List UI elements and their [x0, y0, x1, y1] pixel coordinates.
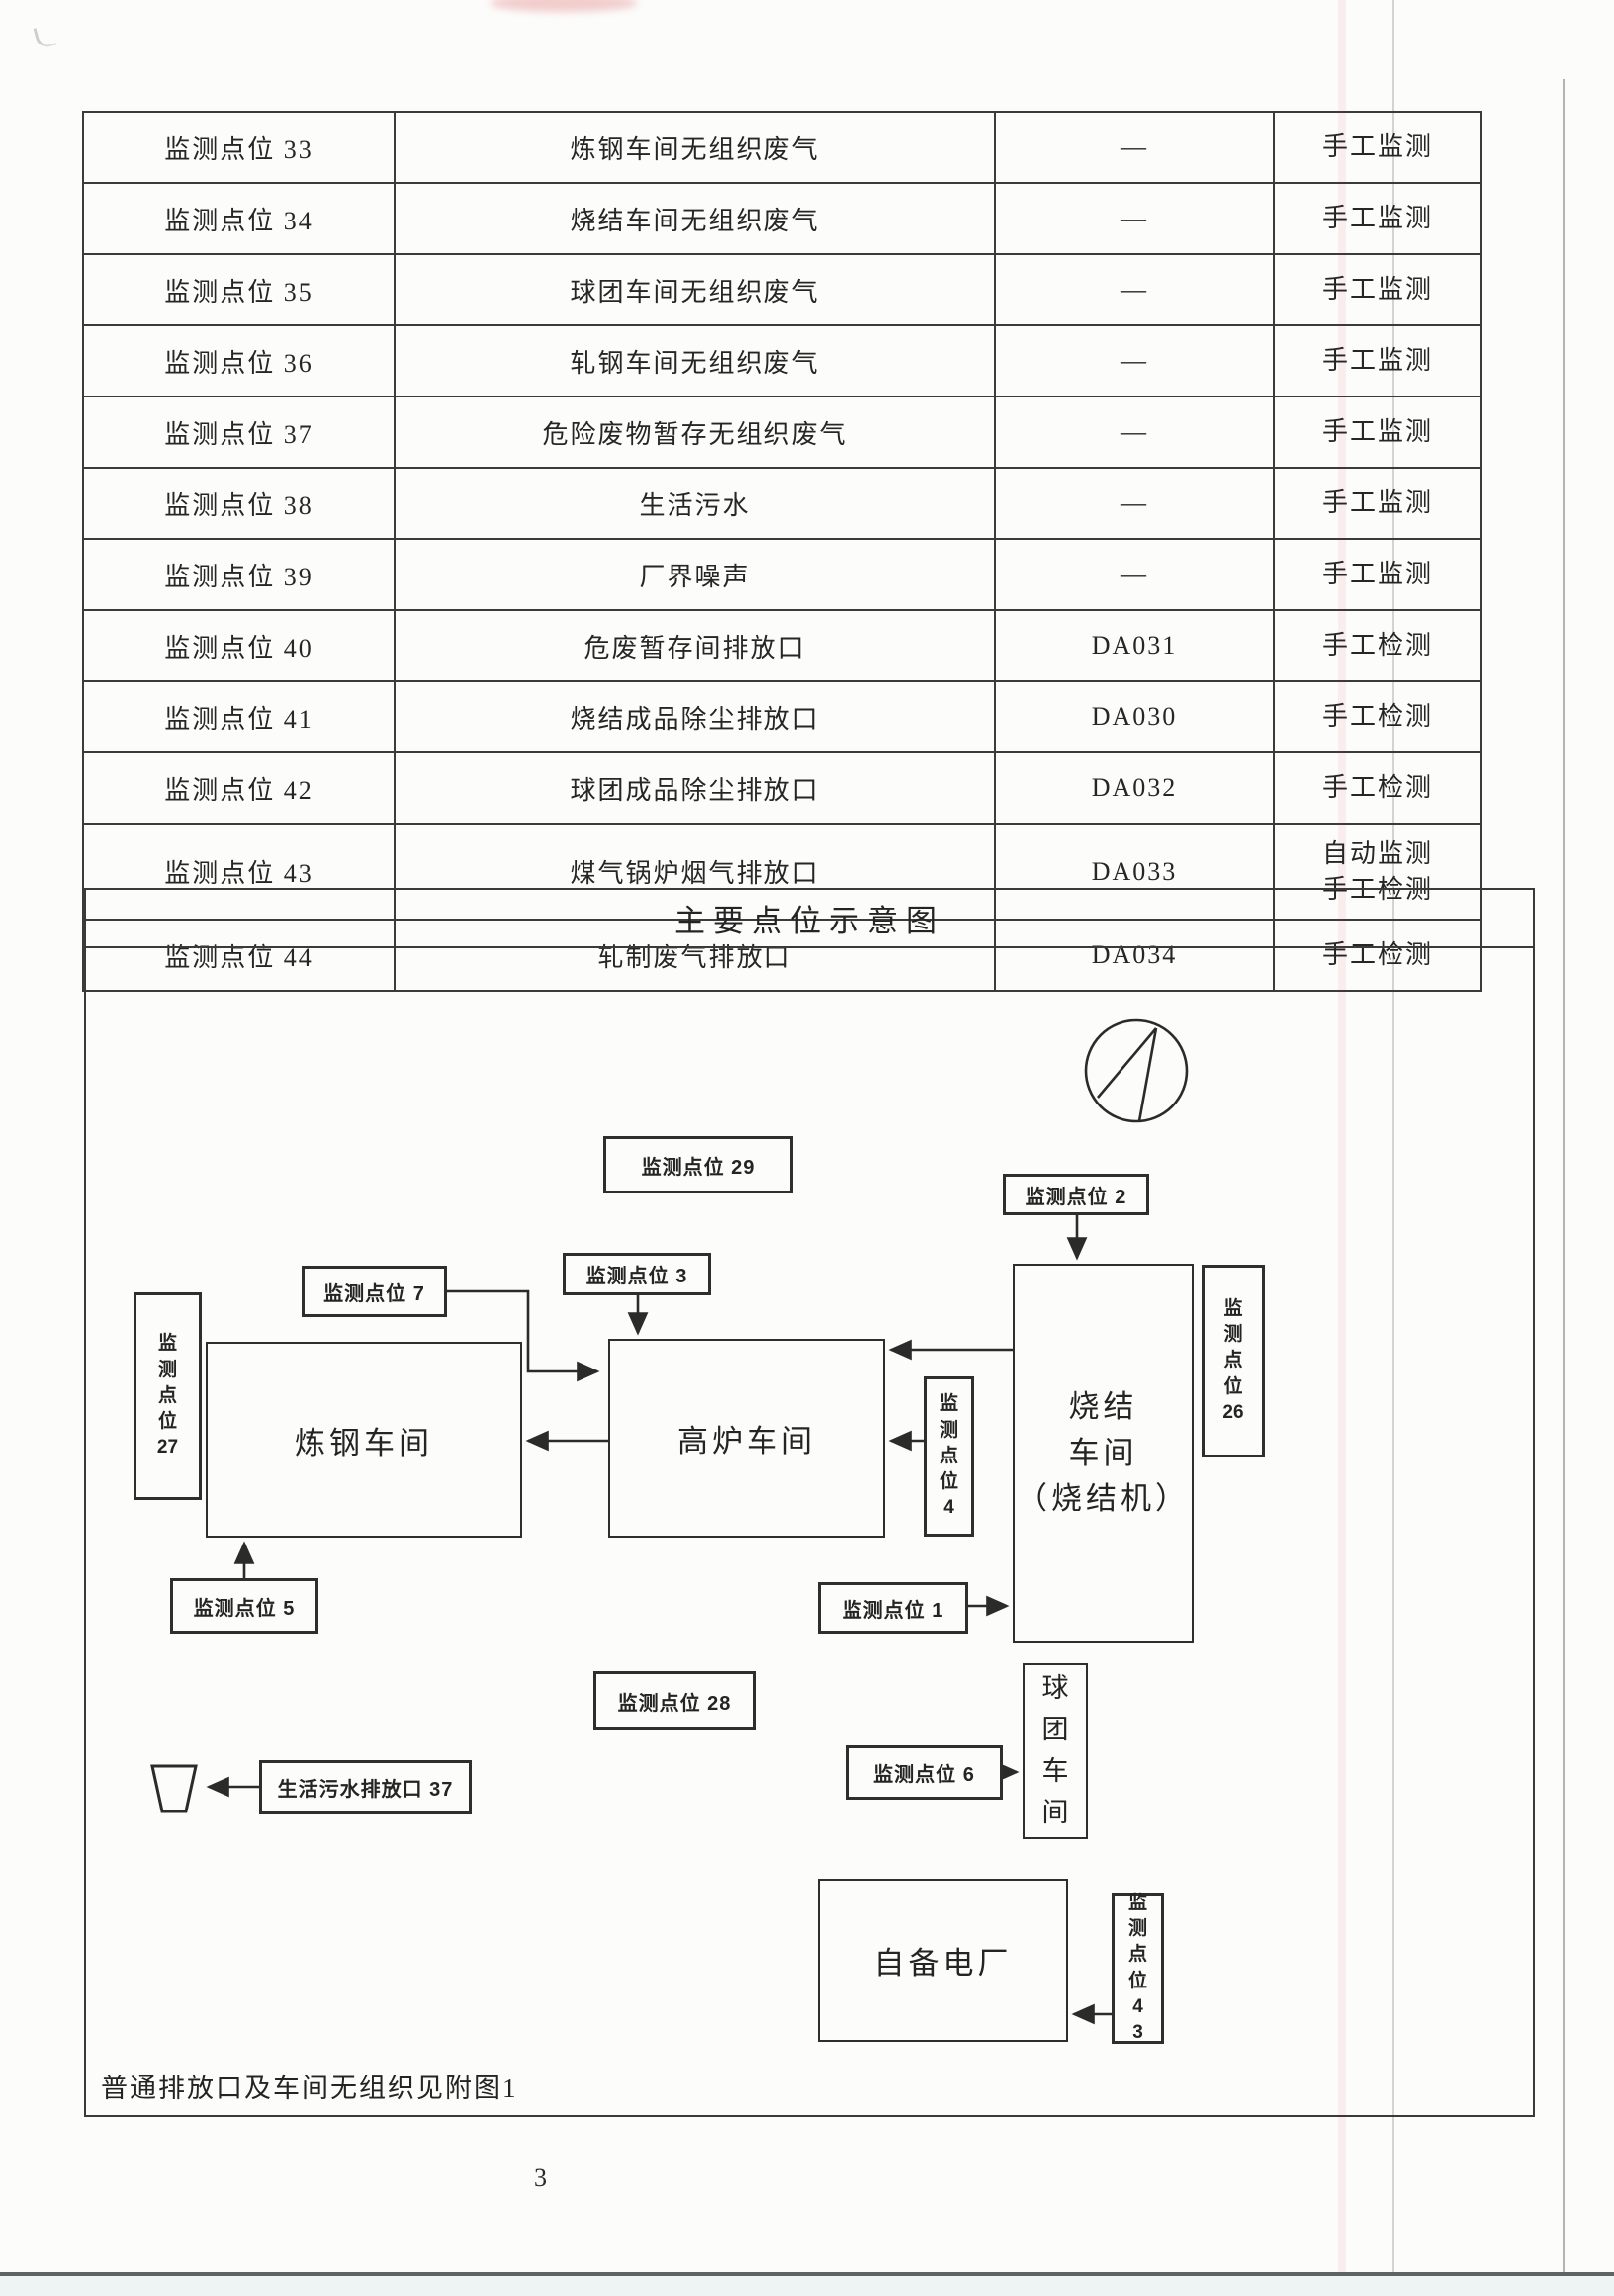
cell-outlet-code: —: [995, 468, 1274, 539]
label-box-point7: 监测点位 7: [302, 1266, 447, 1317]
label-box-point6: 监测点位 6: [846, 1745, 1003, 1800]
cell-method: 手工监测: [1274, 325, 1481, 397]
pelletizing-label: 球团车间: [1042, 1668, 1069, 1833]
label-box-point5: 监测点位 5: [170, 1578, 318, 1634]
table-row: 监测点位 37 危险废物暂存无组织废气 — 手工监测: [83, 397, 1481, 468]
table-row: 监测点位 36 轧钢车间无组织废气 — 手工监测: [83, 325, 1481, 397]
point5-label: 监测点位 5: [194, 1592, 296, 1621]
cell-method: 手工监测: [1274, 112, 1481, 183]
point26-label: 监测点位26: [1222, 1296, 1243, 1426]
page-number: 3: [534, 2164, 547, 2193]
cell-outlet-code: —: [995, 325, 1274, 397]
cell-outlet-code: DA030: [995, 681, 1274, 752]
cell-point-id: 监测点位 37: [83, 397, 395, 468]
label-box-point1: 监测点位 1: [818, 1582, 968, 1634]
label-box-point2: 监测点位 2: [1003, 1174, 1149, 1215]
scanned-document-page: 监测点位 33 炼钢车间无组织废气 — 手工监测 监测点位 34 烧结车间无组织…: [0, 0, 1614, 2296]
workshop-box-sintering: 烧结车间（烧结机）: [1013, 1264, 1194, 1643]
table-row: 监测点位 39 厂界噪声 — 手工监测: [83, 539, 1481, 610]
label-box-sewage-outfall-37: 生活污水排放口 37: [259, 1760, 472, 1814]
scan-edge-line: [1563, 79, 1565, 2276]
cell-point-id: 监测点位 38: [83, 468, 395, 539]
cell-method: 手工监测: [1274, 397, 1481, 468]
diagram-title: 主要点位示意图: [86, 890, 1533, 948]
workshop-box-steelmaking: 炼钢车间: [206, 1342, 522, 1538]
cell-method: 手工监测: [1274, 468, 1481, 539]
label-box-point26: 监测点位26: [1202, 1265, 1265, 1457]
table-row: 监测点位 40 危废暂存间排放口 DA031 手工检测: [83, 610, 1481, 681]
point7-label: 监测点位 7: [323, 1278, 425, 1306]
point28-label: 监测点位 28: [618, 1687, 732, 1716]
blast-furnace-label: 高炉车间: [677, 1416, 816, 1460]
cell-source-name: 球团成品除尘排放口: [395, 752, 995, 824]
cell-method: 手工监测: [1274, 539, 1481, 610]
cell-source-name: 炼钢车间无组织废气: [395, 112, 995, 183]
cell-source-name: 生活污水: [395, 468, 995, 539]
cell-source-name: 烧结车间无组织废气: [395, 183, 995, 254]
compass-icon: [1086, 1020, 1187, 1121]
cell-method: 手工监测: [1274, 254, 1481, 325]
cell-point-id: 监测点位 42: [83, 752, 395, 824]
sewage-outfall-icon: [152, 1766, 196, 1811]
table-row: 监测点位 33 炼钢车间无组织废气 — 手工监测: [83, 112, 1481, 183]
cell-point-id: 监测点位 39: [83, 539, 395, 610]
sewage-outfall-label: 生活污水排放口 37: [278, 1773, 454, 1802]
point43-label: 监测点位43: [1128, 1891, 1147, 2046]
point2-label: 监测点位 2: [1026, 1181, 1127, 1209]
cell-point-id: 监测点位 34: [83, 183, 395, 254]
label-box-point3: 监测点位 3: [563, 1253, 711, 1295]
scan-bottom-bar: [0, 2272, 1614, 2276]
label-box-point27: 监测点位27: [134, 1292, 202, 1500]
cell-outlet-code: DA032: [995, 752, 1274, 824]
monitoring-points-table: 监测点位 33 炼钢车间无组织废气 — 手工监测 监测点位 34 烧结车间无组织…: [82, 111, 1482, 992]
cell-outlet-code: —: [995, 254, 1274, 325]
table-row: 监测点位 42 球团成品除尘排放口 DA032 手工检测: [83, 752, 1481, 824]
cell-source-name: 危废暂存间排放口: [395, 610, 995, 681]
table-row: 监测点位 38 生活污水 — 手工监测: [83, 468, 1481, 539]
diagram-frame: 主要点位示意图: [84, 888, 1535, 2117]
table-body: 监测点位 33 炼钢车间无组织废气 — 手工监测 监测点位 34 烧结车间无组织…: [83, 112, 1481, 991]
point27-label: 监测点位27: [157, 1331, 178, 1460]
point1-label: 监测点位 1: [843, 1594, 944, 1623]
label-box-point43: 监测点位43: [1112, 1893, 1164, 2044]
workshop-box-pelletizing: 球团车间: [1023, 1663, 1088, 1839]
cell-source-name: 球团车间无组织废气: [395, 254, 995, 325]
sintering-label: 烧结车间（烧结机）: [1017, 1384, 1190, 1523]
diagram-footnote: 普通排放口及车间无组织见附图1: [101, 2067, 518, 2105]
label-box-point28: 监测点位 28: [593, 1671, 756, 1730]
scan-stamp-smudge: [490, 0, 638, 12]
table-row: 监测点位 35 球团车间无组织废气 — 手工监测: [83, 254, 1481, 325]
cell-outlet-code: —: [995, 183, 1274, 254]
cell-source-name: 烧结成品除尘排放口: [395, 681, 995, 752]
cell-point-id: 监测点位 40: [83, 610, 395, 681]
scan-pen-mark: [33, 24, 56, 49]
cell-source-name: 轧钢车间无组织废气: [395, 325, 995, 397]
cell-method: 手工检测: [1274, 610, 1481, 681]
workshop-box-blast-furnace: 高炉车间: [608, 1339, 885, 1538]
point6-label: 监测点位 6: [873, 1758, 975, 1787]
cell-outlet-code: DA031: [995, 610, 1274, 681]
cell-outlet-code: —: [995, 397, 1274, 468]
steelmaking-label: 炼钢车间: [295, 1418, 433, 1462]
cell-method: 手工检测: [1274, 681, 1481, 752]
cell-method: 手工检测: [1274, 752, 1481, 824]
cell-point-id: 监测点位 33: [83, 112, 395, 183]
workshop-box-power-plant: 自备电厂: [818, 1879, 1068, 2042]
power-plant-label: 自备电厂: [874, 1938, 1013, 1983]
cell-point-id: 监测点位 35: [83, 254, 395, 325]
cell-method: 手工监测: [1274, 183, 1481, 254]
cell-outlet-code: —: [995, 539, 1274, 610]
label-box-point29: 监测点位 29: [603, 1136, 793, 1193]
cell-source-name: 厂界噪声: [395, 539, 995, 610]
label-box-point4: 监测点位4: [924, 1376, 974, 1537]
cell-point-id: 监测点位 41: [83, 681, 395, 752]
point3-label: 监测点位 3: [586, 1260, 688, 1288]
scan-bottom-strip: [0, 2276, 1614, 2296]
point4-label: 监测点位4: [940, 1391, 958, 1521]
cell-outlet-code: —: [995, 112, 1274, 183]
cell-point-id: 监测点位 36: [83, 325, 395, 397]
cell-source-name: 危险废物暂存无组织废气: [395, 397, 995, 468]
table-row: 监测点位 34 烧结车间无组织废气 — 手工监测: [83, 183, 1481, 254]
point29-label: 监测点位 29: [642, 1151, 756, 1180]
table-row: 监测点位 41 烧结成品除尘排放口 DA030 手工检测: [83, 681, 1481, 752]
